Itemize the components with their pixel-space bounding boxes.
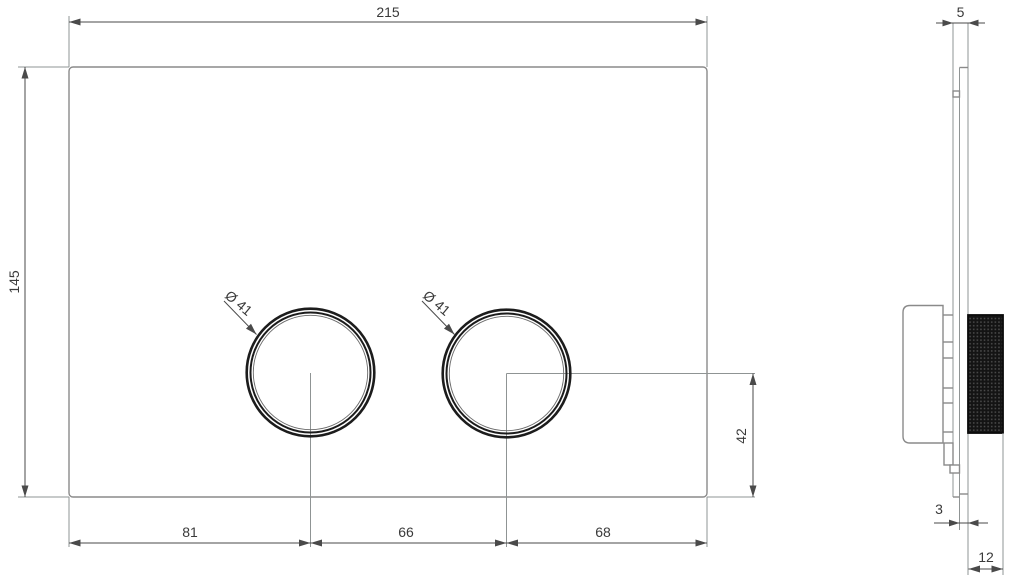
side-mechanism-housing <box>903 306 960 474</box>
side-button-knob <box>968 315 1003 433</box>
dimension-bottom-left: 81 <box>69 524 311 543</box>
dimension-center-height: 42 <box>733 374 753 498</box>
dimension-height-label: 145 <box>6 270 22 294</box>
front-view: 215 145 81 66 68 42 Ø 41 <box>6 4 755 547</box>
dimension-bottom-right-label: 68 <box>595 524 611 540</box>
dimension-width-label: 215 <box>376 4 400 20</box>
technical-drawing: 215 145 81 66 68 42 Ø 41 <box>0 0 1024 582</box>
dimension-height: 145 <box>6 67 25 497</box>
dimension-front-offset-label: 3 <box>935 501 943 517</box>
dimension-depth: 5 <box>936 4 985 26</box>
dimension-projection-label: 12 <box>978 549 994 565</box>
dimension-width: 215 <box>69 4 707 22</box>
dimension-bottom-right: 68 <box>507 524 708 543</box>
dimension-bottom-center: 66 <box>311 524 507 543</box>
plate-outline <box>69 67 707 497</box>
side-view: 5 3 12 <box>903 4 1003 575</box>
side-plate-profile <box>953 23 968 575</box>
dimension-projection: 12 <box>969 549 1004 569</box>
dimension-front-offset: 3 <box>934 501 988 526</box>
dimension-bottom-center-label: 66 <box>398 524 414 540</box>
dimension-depth-label: 5 <box>957 4 965 20</box>
dimension-bottom-left-label: 81 <box>182 524 198 540</box>
dimension-center-height-label: 42 <box>733 428 749 444</box>
